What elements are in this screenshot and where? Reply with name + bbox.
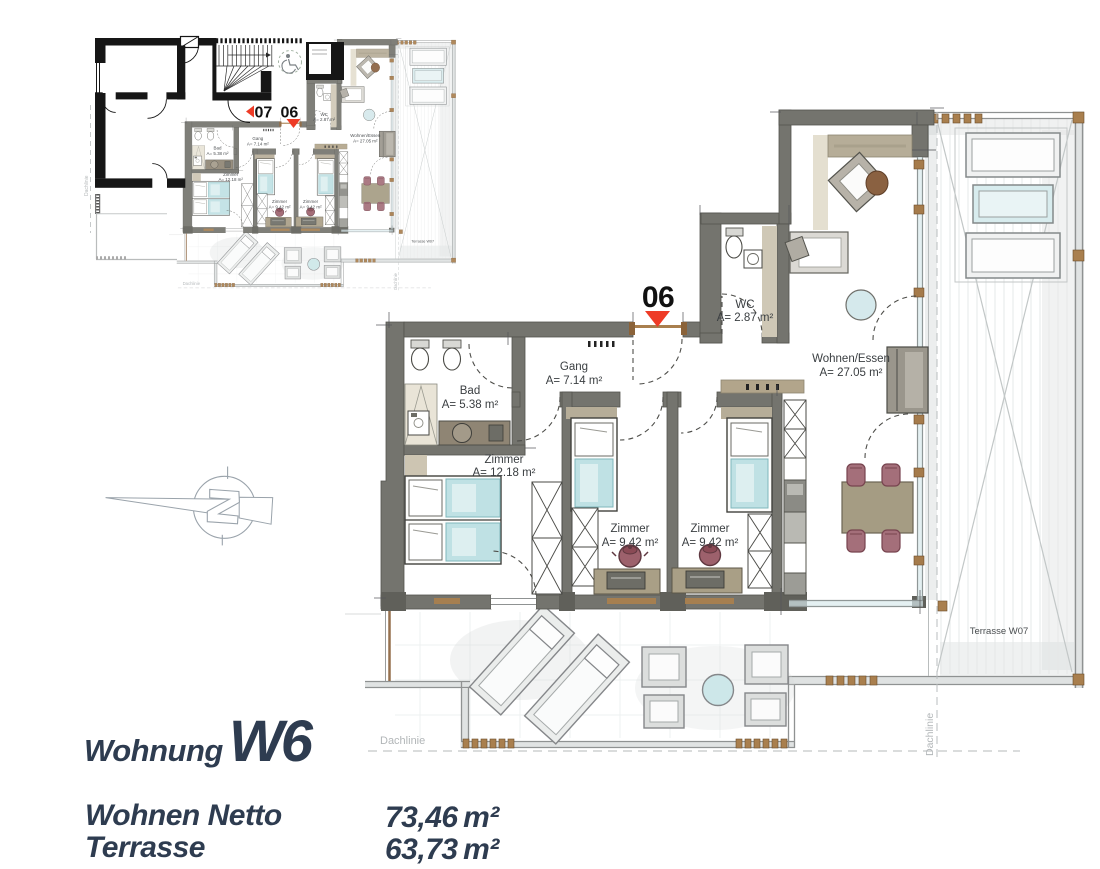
svg-text:07: 07 <box>255 105 273 122</box>
svg-text:Wohnung: Wohnung <box>84 733 223 768</box>
svg-text:06: 06 <box>281 105 299 122</box>
svg-text:Dachlinie: Dachlinie <box>84 175 90 196</box>
svg-text:73,46 m²: 73,46 m² <box>385 801 500 834</box>
svg-text:06: 06 <box>642 281 674 314</box>
svg-text:Terrasse: Terrasse <box>85 831 205 864</box>
svg-text:Wohnen Netto: Wohnen Netto <box>85 799 282 832</box>
svg-text:63,73 m²: 63,73 m² <box>385 833 500 866</box>
svg-text:W6: W6 <box>229 709 314 774</box>
